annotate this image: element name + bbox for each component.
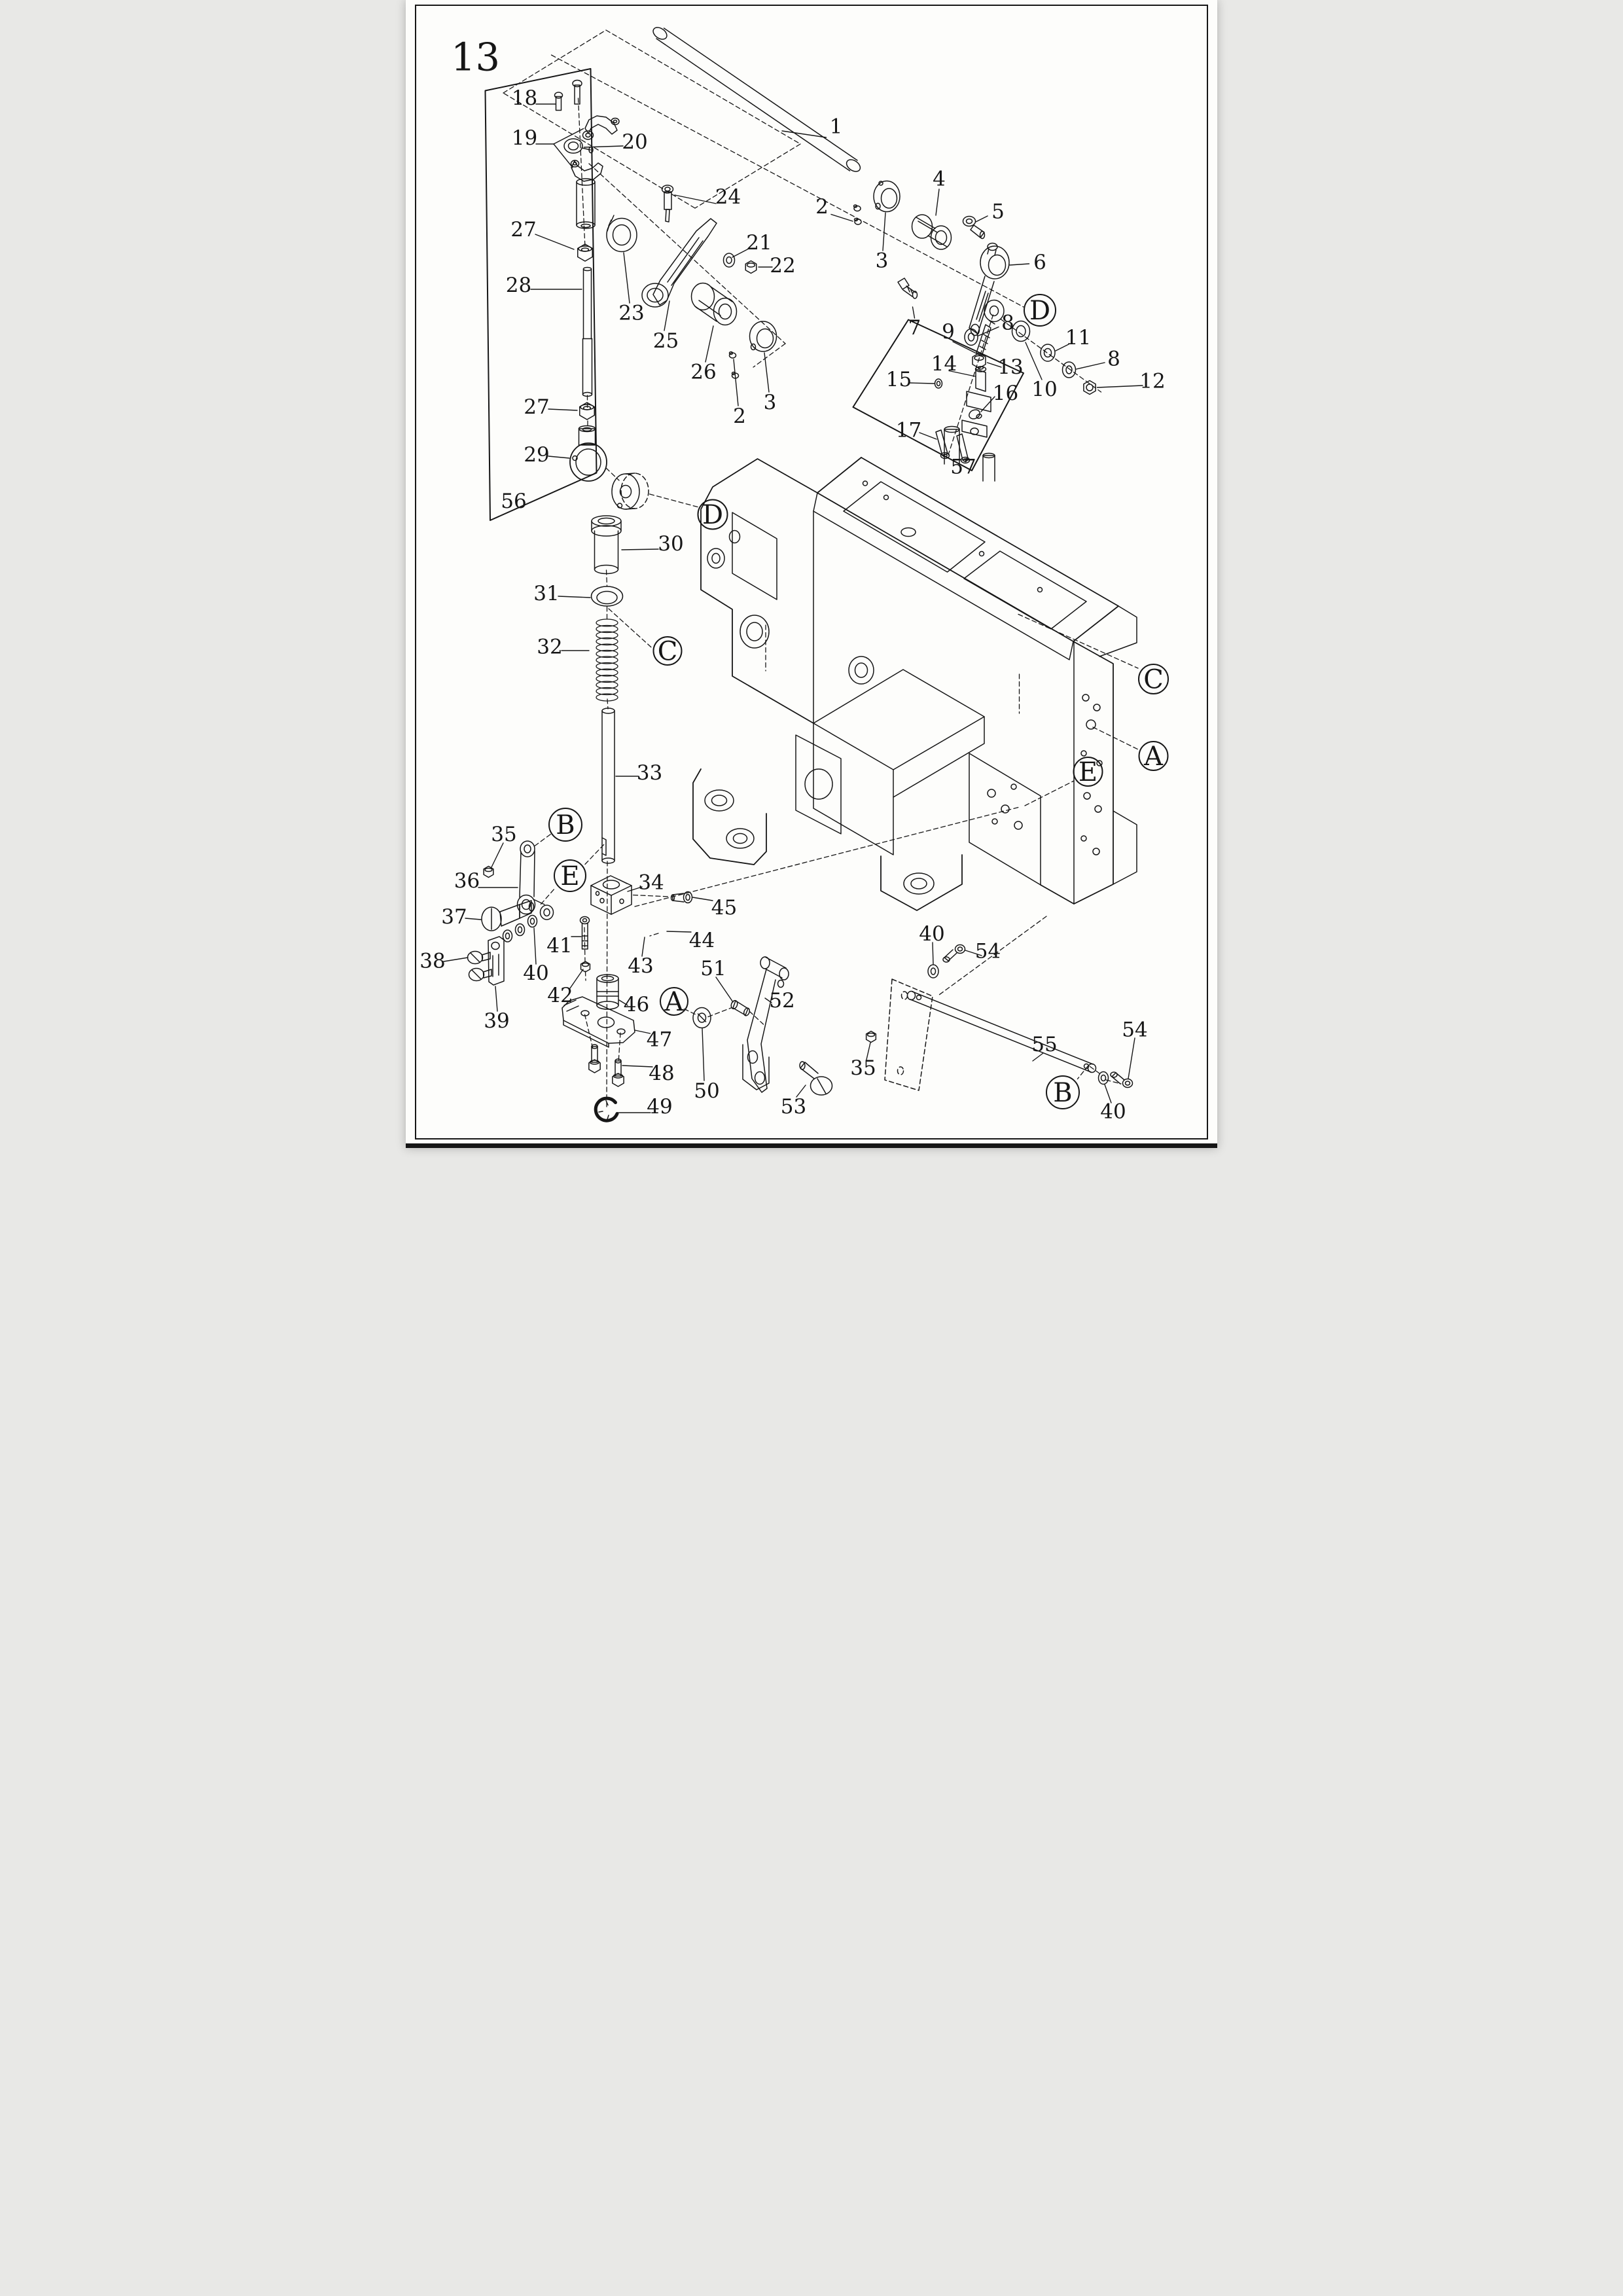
svg-text:37: 37 bbox=[441, 905, 467, 929]
svg-text:34: 34 bbox=[638, 871, 664, 895]
svg-text:3: 3 bbox=[764, 391, 777, 414]
svg-text:40: 40 bbox=[1100, 1100, 1126, 1124]
svg-text:23: 23 bbox=[618, 302, 644, 325]
svg-text:13: 13 bbox=[997, 355, 1023, 379]
svg-text:38: 38 bbox=[419, 950, 445, 973]
svg-text:42: 42 bbox=[547, 984, 573, 1007]
svg-text:36: 36 bbox=[454, 869, 480, 893]
svg-text:49: 49 bbox=[647, 1095, 672, 1119]
svg-text:21: 21 bbox=[746, 231, 772, 255]
svg-text:B: B bbox=[556, 810, 575, 840]
diagram-canvas: 1312345678910118121314151617571819202421… bbox=[406, 0, 1217, 1148]
svg-text:E: E bbox=[1079, 757, 1097, 787]
svg-text:14: 14 bbox=[931, 352, 957, 376]
part-label-56: 56 bbox=[501, 490, 526, 513]
svg-text:46: 46 bbox=[624, 993, 649, 1016]
page-number: 13 bbox=[451, 35, 500, 80]
scan-edge-bar bbox=[406, 1143, 1217, 1148]
svg-text:3: 3 bbox=[876, 249, 889, 273]
svg-text:27: 27 bbox=[524, 395, 549, 419]
svg-text:D: D bbox=[1029, 296, 1050, 326]
svg-text:2: 2 bbox=[733, 404, 746, 428]
svg-text:50: 50 bbox=[694, 1079, 719, 1103]
svg-text:33: 33 bbox=[637, 761, 662, 785]
svg-text:11: 11 bbox=[1065, 326, 1091, 350]
svg-text:45: 45 bbox=[711, 896, 737, 920]
svg-text:35: 35 bbox=[850, 1056, 876, 1080]
svg-text:35: 35 bbox=[491, 823, 516, 846]
svg-text:1: 1 bbox=[830, 115, 843, 139]
svg-text:22: 22 bbox=[770, 254, 795, 278]
svg-text:9: 9 bbox=[942, 320, 955, 344]
svg-text:A: A bbox=[664, 987, 685, 1017]
svg-text:56: 56 bbox=[501, 490, 526, 513]
svg-text:4: 4 bbox=[933, 168, 946, 191]
svg-text:26: 26 bbox=[690, 361, 716, 384]
svg-text:15: 15 bbox=[886, 368, 912, 391]
svg-text:5: 5 bbox=[991, 200, 1005, 224]
svg-text:12: 12 bbox=[1139, 370, 1165, 393]
svg-text:54: 54 bbox=[1122, 1018, 1147, 1042]
svg-text:A: A bbox=[1143, 742, 1164, 772]
svg-text:31: 31 bbox=[533, 582, 559, 605]
svg-text:39: 39 bbox=[484, 1009, 509, 1033]
svg-text:47: 47 bbox=[647, 1028, 672, 1052]
svg-text:29: 29 bbox=[524, 443, 549, 467]
svg-text:16: 16 bbox=[993, 382, 1018, 405]
svg-text:51: 51 bbox=[700, 957, 726, 980]
svg-text:25: 25 bbox=[653, 329, 679, 353]
svg-text:28: 28 bbox=[506, 274, 531, 297]
svg-text:C: C bbox=[658, 637, 678, 667]
svg-text:53: 53 bbox=[781, 1095, 806, 1119]
svg-text:57: 57 bbox=[950, 456, 976, 479]
part-label-52: 52 bbox=[765, 989, 795, 1013]
svg-text:52: 52 bbox=[769, 989, 794, 1013]
svg-text:10: 10 bbox=[1031, 378, 1057, 401]
svg-text:43: 43 bbox=[628, 954, 653, 978]
svg-text:18: 18 bbox=[512, 86, 537, 110]
svg-text:8: 8 bbox=[1001, 312, 1014, 335]
svg-text:40: 40 bbox=[919, 922, 944, 946]
svg-text:17: 17 bbox=[896, 419, 921, 442]
svg-text:24: 24 bbox=[715, 185, 741, 209]
section-letter-C: C bbox=[654, 637, 682, 667]
svg-text:44: 44 bbox=[689, 929, 715, 952]
svg-text:2: 2 bbox=[815, 195, 829, 219]
svg-text:B: B bbox=[1053, 1078, 1072, 1108]
svg-text:7: 7 bbox=[908, 316, 921, 340]
svg-text:30: 30 bbox=[658, 532, 683, 556]
svg-text:8: 8 bbox=[1107, 348, 1120, 371]
svg-text:6: 6 bbox=[1033, 251, 1046, 274]
svg-text:55: 55 bbox=[1031, 1033, 1057, 1056]
svg-text:13: 13 bbox=[451, 35, 500, 80]
svg-text:20: 20 bbox=[622, 130, 647, 154]
svg-text:41: 41 bbox=[546, 934, 572, 958]
svg-text:40: 40 bbox=[523, 961, 548, 985]
svg-text:54: 54 bbox=[975, 940, 1001, 963]
svg-text:E: E bbox=[560, 861, 579, 891]
part-label-46: 46 bbox=[619, 993, 649, 1016]
manual-page: 1312345678910118121314151617571819202421… bbox=[406, 0, 1217, 1148]
svg-text:19: 19 bbox=[512, 126, 537, 150]
svg-text:48: 48 bbox=[649, 1062, 674, 1085]
svg-text:D: D bbox=[702, 500, 723, 530]
svg-text:32: 32 bbox=[537, 636, 562, 659]
svg-text:27: 27 bbox=[510, 218, 536, 242]
part-label-57: 57 bbox=[950, 456, 976, 479]
svg-text:C: C bbox=[1143, 665, 1164, 695]
section-letter-D: D bbox=[698, 500, 728, 531]
